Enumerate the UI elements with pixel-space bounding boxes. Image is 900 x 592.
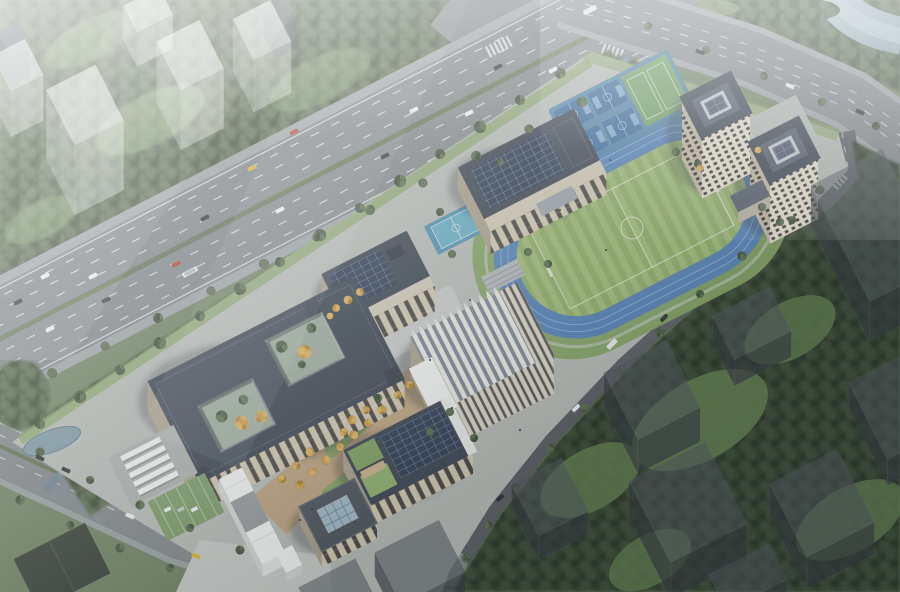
rendering-canvas: Aerial architectural rendering of a scho… — [0, 0, 900, 592]
atmosphere-overlays — [0, 0, 900, 592]
aerial-rendering: Aerial architectural rendering of a scho… — [0, 0, 900, 592]
